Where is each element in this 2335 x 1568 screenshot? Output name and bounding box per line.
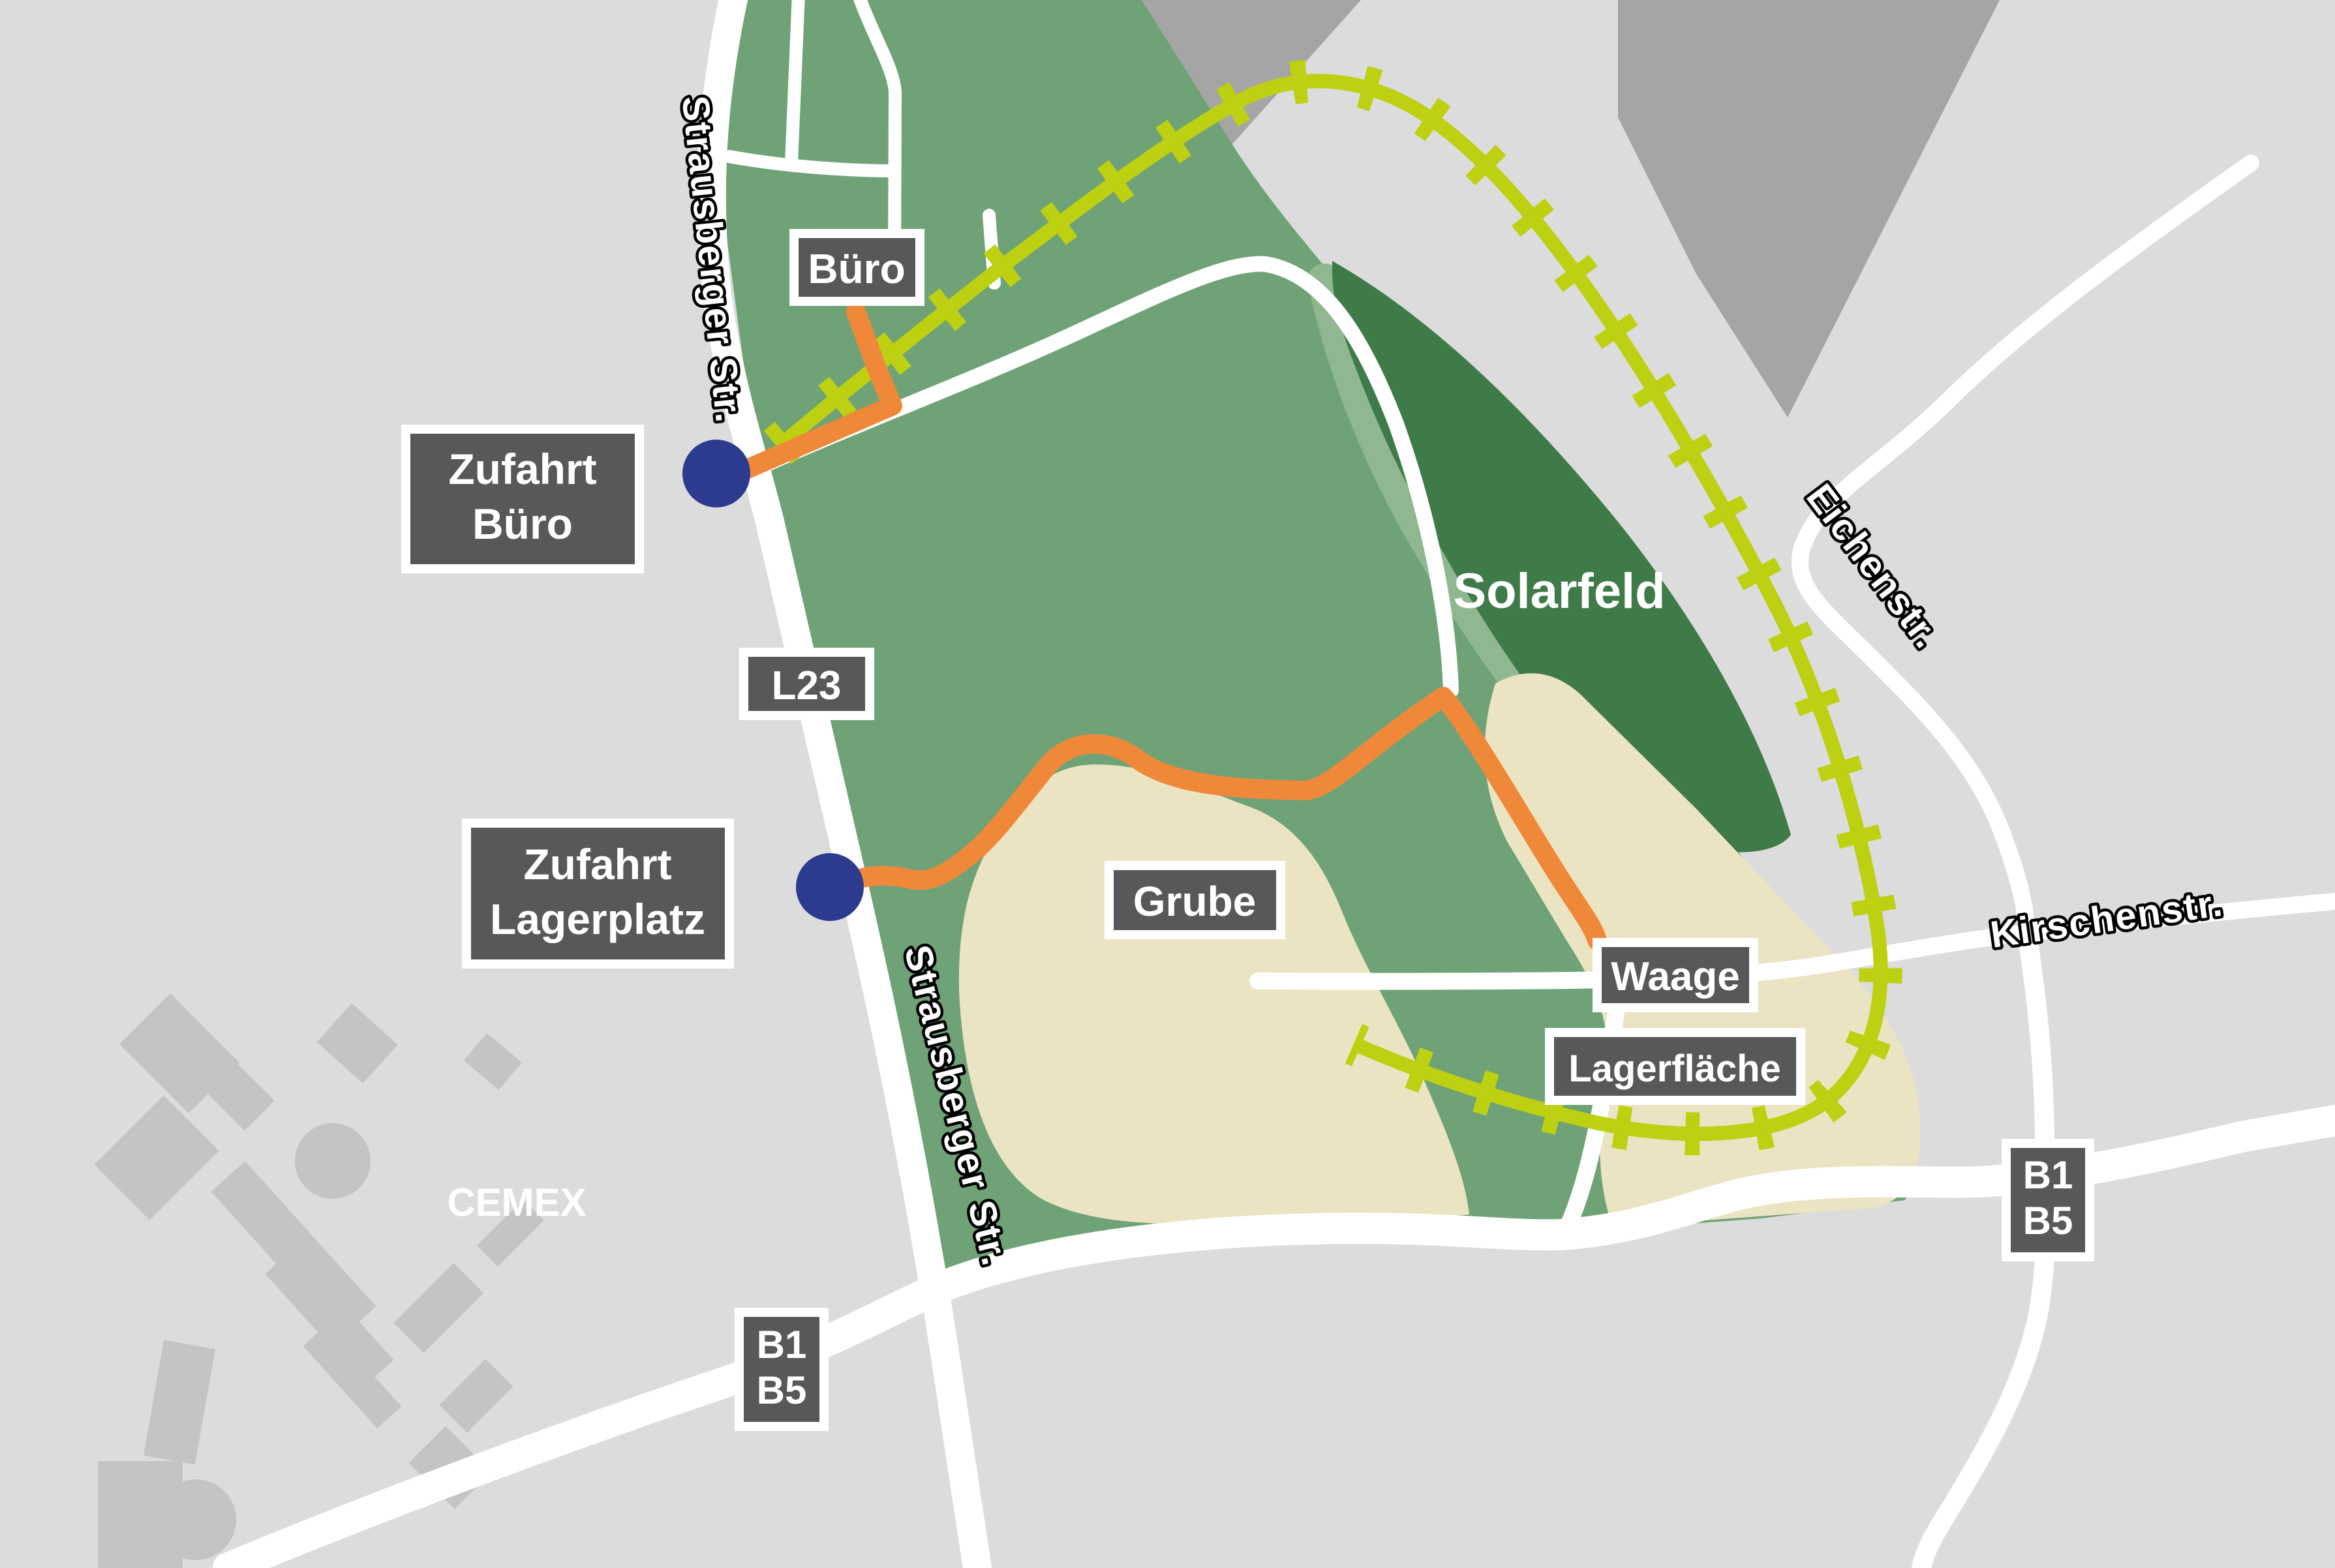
- site-access-map: Strausberger Str. Strausberger Str. Eich…: [0, 0, 2335, 1568]
- label-buero: Büro: [794, 234, 920, 301]
- svg-text:Lagerplatz: Lagerplatz: [490, 895, 705, 943]
- label-zufahrt-lagerplatz: Zufahrt Lagerplatz: [466, 823, 729, 964]
- svg-text:Waage: Waage: [1611, 954, 1740, 999]
- svg-text:Büro: Büro: [472, 500, 573, 548]
- label-l23: L23: [744, 652, 870, 716]
- svg-text:Zufahrt: Zufahrt: [448, 445, 596, 493]
- label-b1b5-east: B1 B5: [2006, 1143, 2090, 1257]
- label-b1b5-west: B1 B5: [739, 1312, 824, 1426]
- svg-text:Grube: Grube: [1133, 878, 1256, 925]
- parcel-road-1: [791, 0, 799, 163]
- cemex-title: CEMEX: [447, 1181, 586, 1224]
- svg-text:B5: B5: [2023, 1199, 2073, 1243]
- access-dot-buero: [682, 440, 750, 507]
- label-zufahrt-buero: Zufahrt Büro: [406, 429, 639, 569]
- label-lagerflaeche: Lagerfläche: [1549, 1033, 1801, 1100]
- svg-text:B5: B5: [757, 1368, 807, 1412]
- svg-text:L23: L23: [772, 663, 842, 708]
- label-waage: Waage: [1597, 942, 1754, 1008]
- svg-text:B1: B1: [2023, 1153, 2073, 1197]
- svg-text:Büro: Büro: [808, 245, 905, 292]
- svg-text:Zufahrt: Zufahrt: [523, 840, 671, 888]
- svg-text:B1: B1: [757, 1323, 807, 1366]
- access-dot-lagerplatz: [796, 853, 864, 921]
- label-grube: Grube: [1109, 866, 1281, 935]
- solarfeld-title: Solarfeld: [1453, 564, 1665, 619]
- svg-text:Lagerfläche: Lagerfläche: [1568, 1048, 1781, 1090]
